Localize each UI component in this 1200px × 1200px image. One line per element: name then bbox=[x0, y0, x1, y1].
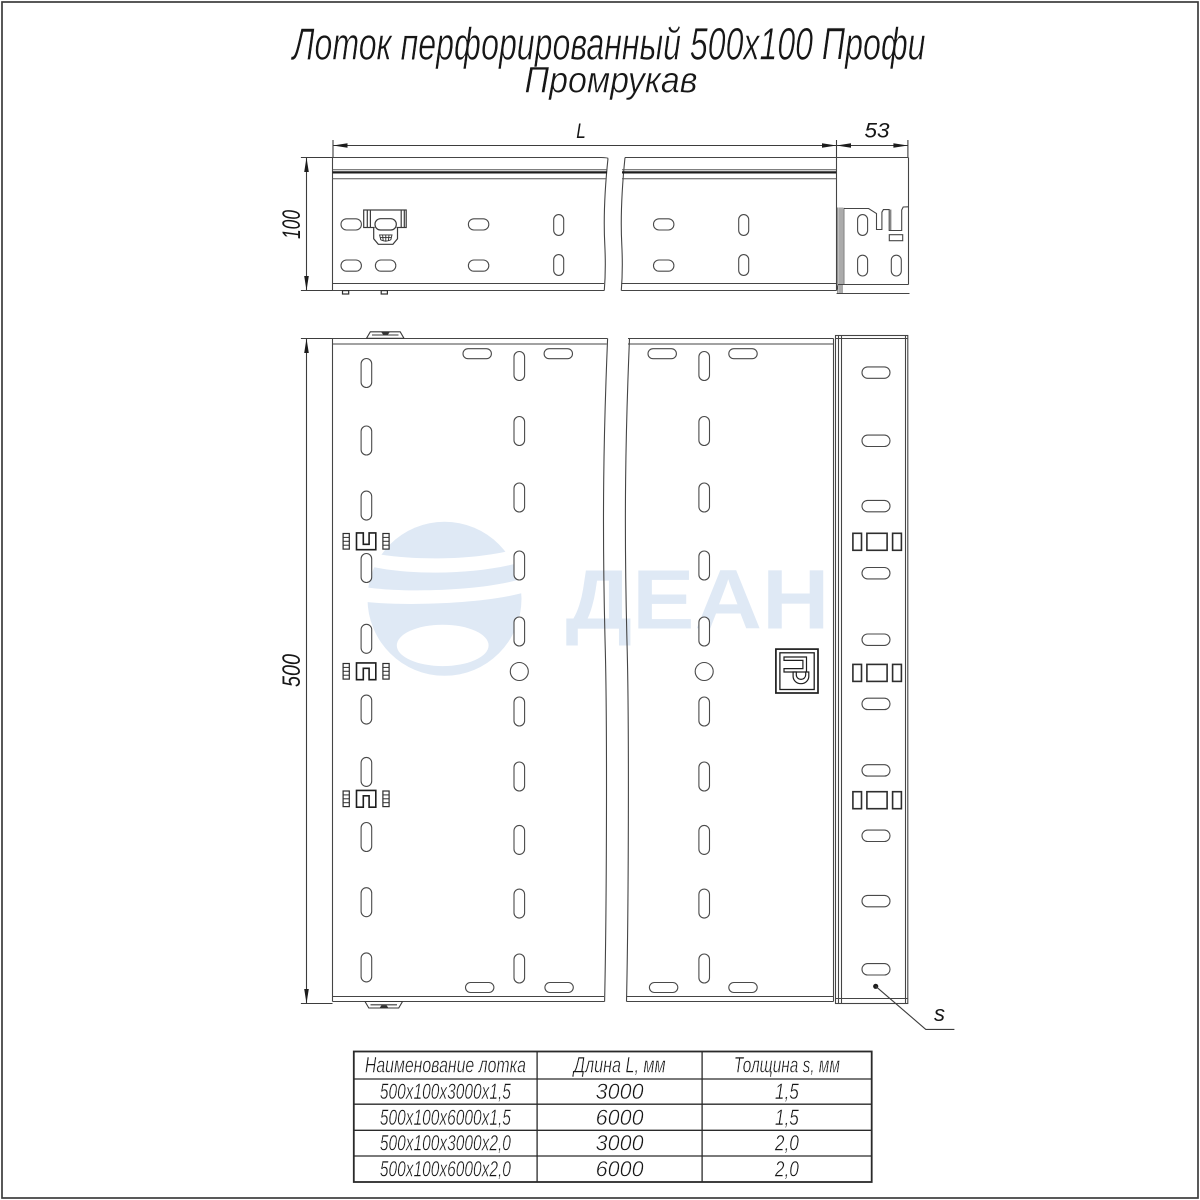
svg-text:3000: 3000 bbox=[596, 1131, 645, 1156]
svg-text:500х100х3000х1,5: 500х100х3000х1,5 bbox=[380, 1079, 512, 1104]
svg-text:L: L bbox=[576, 120, 586, 143]
svg-text:53: 53 bbox=[865, 120, 890, 143]
svg-text:500: 500 bbox=[278, 654, 306, 687]
svg-text:Длина L, мм: Длина L, мм bbox=[571, 1053, 665, 1078]
svg-text:2,0: 2,0 bbox=[774, 1157, 799, 1182]
svg-text:Наименование лотка: Наименование лотка bbox=[365, 1053, 526, 1078]
svg-text:3000: 3000 bbox=[596, 1079, 645, 1104]
svg-text:s: s bbox=[934, 1001, 945, 1026]
svg-text:100: 100 bbox=[278, 210, 306, 239]
svg-text:1,5: 1,5 bbox=[775, 1105, 800, 1130]
svg-text:500х100х6000х1,5: 500х100х6000х1,5 bbox=[380, 1105, 512, 1130]
svg-text:1,5: 1,5 bbox=[775, 1079, 800, 1104]
svg-text:500х100х3000х2,0: 500х100х3000х2,0 bbox=[380, 1131, 512, 1156]
svg-text:6000: 6000 bbox=[596, 1157, 645, 1182]
svg-text:6000: 6000 bbox=[596, 1105, 645, 1130]
svg-text:Промрукав: Промрукав bbox=[525, 60, 698, 101]
svg-text:Толщина s, мм: Толщина s, мм bbox=[734, 1053, 840, 1078]
svg-text:500х100х6000х2,0: 500х100х6000х2,0 bbox=[380, 1157, 512, 1182]
svg-text:2,0: 2,0 bbox=[774, 1131, 799, 1156]
